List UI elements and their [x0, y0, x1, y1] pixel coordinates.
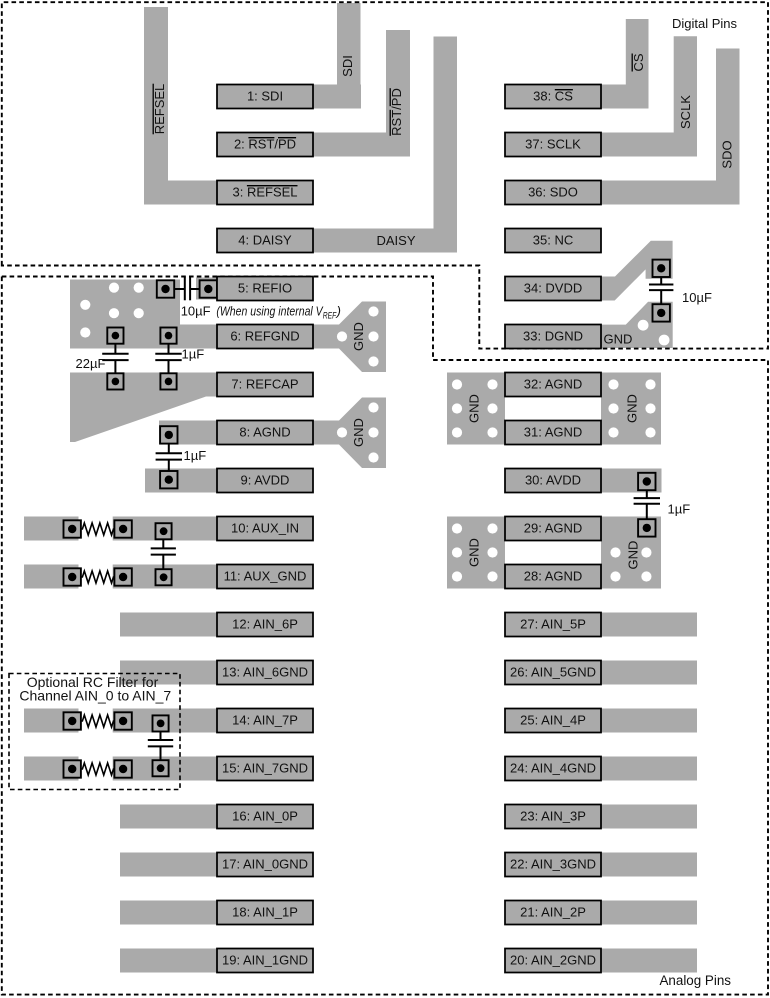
svg-text:22: AIN_3GND: 22: AIN_3GND	[510, 857, 596, 872]
svg-text:30: AVDD: 30: AVDD	[525, 473, 581, 488]
svg-text:GND: GND	[351, 322, 366, 351]
svg-text:CS: CS	[631, 53, 646, 71]
svg-text:29: AGND: 29: AGND	[524, 521, 583, 536]
svg-text:8: AGND: 8: AGND	[239, 425, 290, 440]
svg-text:16: AIN_0P: 16: AIN_0P	[232, 809, 298, 824]
svg-text:REFSEL: REFSEL	[152, 84, 167, 135]
svg-text:7: REFCAP: 7: REFCAP	[231, 377, 298, 392]
svg-text:9: AVDD: 9: AVDD	[241, 473, 290, 488]
svg-text:34: DVDD: 34: DVDD	[524, 281, 583, 296]
svg-text:32: AGND: 32: AGND	[524, 377, 583, 392]
svg-text:1µF: 1µF	[184, 448, 207, 463]
svg-text:Analog Pins: Analog Pins	[660, 973, 732, 988]
svg-text:18: AIN_1P: 18: AIN_1P	[232, 905, 298, 920]
svg-text:21: AIN_2P: 21: AIN_2P	[520, 905, 586, 920]
svg-text:13: AIN_6GND: 13: AIN_6GND	[222, 665, 308, 680]
svg-text:17: AIN_0GND: 17: AIN_0GND	[222, 857, 308, 872]
svg-text:36: SDO: 36: SDO	[528, 185, 578, 200]
svg-text:23: AIN_3P: 23: AIN_3P	[520, 809, 586, 824]
svg-text:14: AIN_7P: 14: AIN_7P	[232, 713, 298, 728]
svg-text:10: AUX_IN: 10: AUX_IN	[231, 521, 299, 536]
svg-text:10µF: 10µF	[181, 304, 211, 319]
svg-text:DAISY: DAISY	[376, 233, 415, 248]
svg-text:22µF: 22µF	[76, 356, 106, 371]
svg-text:37: SCLK: 37: SCLK	[525, 137, 581, 152]
svg-text:1µF: 1µF	[182, 347, 205, 362]
svg-text:RST/PD: RST/PD	[389, 88, 404, 136]
svg-text:28: AGND: 28: AGND	[524, 569, 583, 584]
svg-text:2: RST/PD: 2: RST/PD	[234, 137, 296, 152]
svg-text:15: AIN_7GND: 15: AIN_7GND	[222, 761, 308, 776]
svg-text:24: AIN_4GND: 24: AIN_4GND	[510, 761, 596, 776]
svg-text:1: SDI: 1: SDI	[247, 89, 283, 104]
svg-text:11: AUX_GND: 11: AUX_GND	[224, 569, 307, 584]
svg-text:Channel AIN_0 to AIN_7: Channel AIN_0 to AIN_7	[19, 688, 171, 704]
svg-text:SCLK: SCLK	[678, 95, 693, 129]
svg-text:33: DGND: 33: DGND	[523, 329, 583, 344]
svg-text:35: NC: 35: NC	[533, 233, 573, 248]
svg-text:12: AIN_6P: 12: AIN_6P	[232, 617, 298, 632]
svg-text:27: AIN_5P: 27: AIN_5P	[520, 617, 586, 632]
svg-text:GND: GND	[625, 394, 640, 423]
svg-text:10µF: 10µF	[682, 290, 712, 305]
svg-text:3: REFSEL: 3: REFSEL	[232, 185, 297, 200]
svg-text:(When using internal V: (When using internal V	[216, 304, 323, 319]
svg-text:GND: GND	[604, 332, 633, 347]
svg-text:GND: GND	[351, 418, 366, 447]
svg-text:26: AIN_5GND: 26: AIN_5GND	[510, 665, 596, 680]
svg-text:GND: GND	[467, 394, 482, 423]
svg-text:REF: REF	[323, 311, 337, 322]
svg-text:GND: GND	[626, 541, 641, 570]
svg-text:Digital Pins: Digital Pins	[672, 16, 738, 31]
svg-text:38: CS: 38: CS	[533, 89, 573, 104]
svg-text:25: AIN_4P: 25: AIN_4P	[520, 713, 586, 728]
svg-text:20: AIN_2GND: 20: AIN_2GND	[510, 953, 596, 968]
svg-text:5: REFIO: 5: REFIO	[238, 281, 292, 296]
svg-text:SDI: SDI	[340, 55, 355, 77]
svg-text:GND: GND	[467, 538, 482, 567]
svg-text:1µF: 1µF	[668, 502, 691, 517]
svg-text:6: REFGND: 6: REFGND	[230, 329, 299, 344]
svg-text:4: DAISY: 4: DAISY	[238, 233, 292, 248]
svg-text:19: AIN_1GND: 19: AIN_1GND	[222, 953, 308, 968]
svg-text:31: AGND: 31: AGND	[524, 425, 583, 440]
svg-text:SDO: SDO	[720, 140, 735, 168]
